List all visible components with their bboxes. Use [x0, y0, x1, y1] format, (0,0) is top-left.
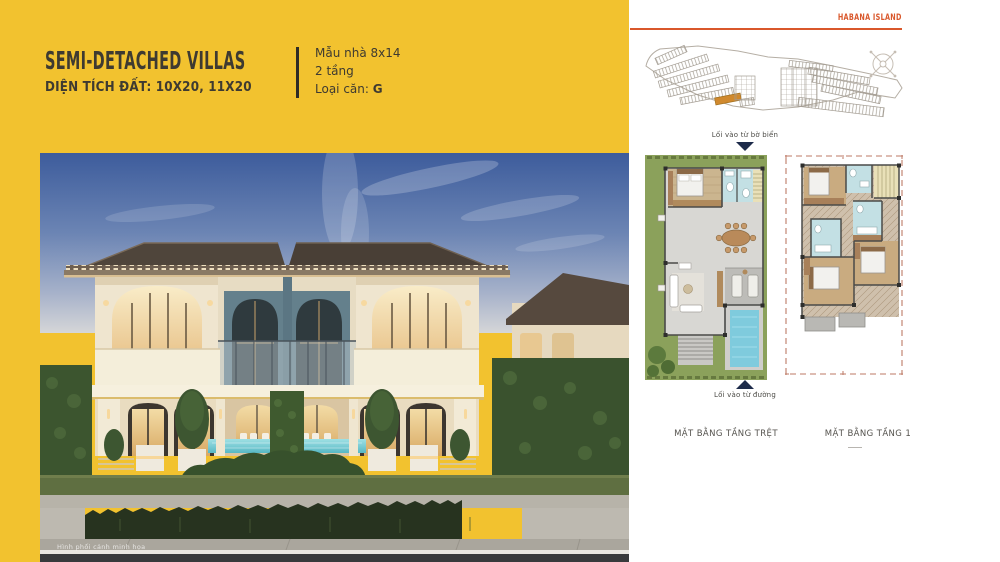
first-floor-plan: [785, 155, 903, 375]
brochure-page: SEMI-DETACHED VILLAS DIỆN TÍCH ĐẤT: 10X2…: [0, 0, 1000, 562]
ground-floor-plan: [645, 155, 767, 380]
brand-underline: [630, 28, 902, 30]
compass-icon: [870, 51, 897, 78]
ground-plan-label: MẶT BẰNG TẦNG TRỆT: [660, 429, 792, 439]
arrow-up-icon: [736, 380, 754, 389]
first-floor-plan-graphic: [785, 155, 903, 375]
road-entry-label: Lối vào từ đường: [660, 391, 830, 399]
spec-unit-value: G: [373, 82, 383, 96]
ground-floor-plan-graphic: [645, 155, 767, 380]
page-title: SEMI-DETACHED VILLAS: [45, 46, 245, 75]
spec-floors: 2 tầng: [315, 62, 401, 80]
spec-unit: Loại căn: G: [315, 82, 383, 96]
label-underline-mark: [848, 447, 862, 448]
villa-rendering-graphic: [40, 153, 629, 562]
beach-entry-label: Lối vào từ bờ biển: [660, 131, 830, 139]
villa-rendering: Hình phối cảnh minh họa: [40, 153, 629, 562]
spec-divider: [296, 47, 299, 98]
spec-unit-label: Loại căn:: [315, 82, 369, 96]
spec-block: Mẫu nhà 8x14 2 tầng: [315, 44, 401, 80]
arrow-down-icon: [736, 142, 754, 151]
site-map-graphic: [641, 44, 905, 130]
site-map: [641, 44, 905, 130]
brand-title: HABANA ISLAND: [838, 13, 902, 23]
spec-model: Mẫu nhà 8x14: [315, 44, 401, 62]
page-subtitle: DIỆN TÍCH ĐẤT: 10X20, 11X20: [45, 80, 252, 95]
photo-caption: Hình phối cảnh minh họa: [57, 543, 145, 551]
first-plan-label: MẶT BẰNG TẦNG 1: [800, 429, 936, 439]
